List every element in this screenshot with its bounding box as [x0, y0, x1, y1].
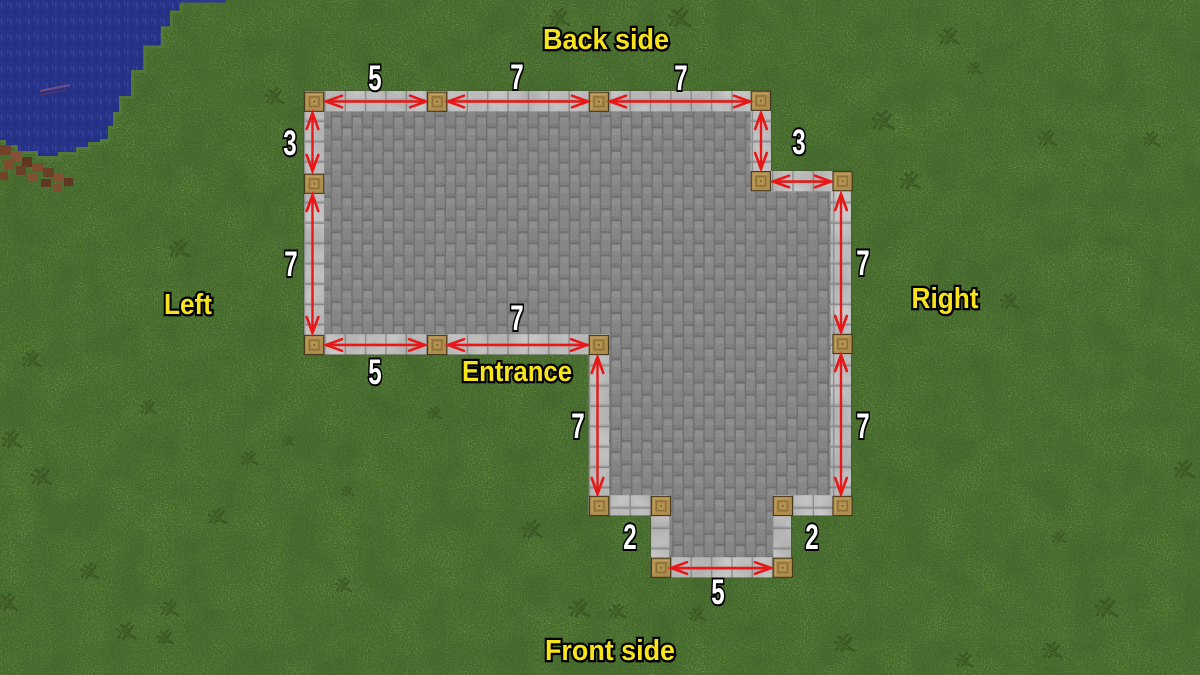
- svg-text:7: 7: [510, 58, 523, 97]
- svg-text:7: 7: [284, 245, 297, 284]
- svg-text:7: 7: [571, 407, 584, 446]
- svg-text:7: 7: [674, 59, 687, 98]
- svg-text:5: 5: [368, 59, 381, 98]
- svg-text:Right: Right: [912, 283, 979, 315]
- svg-text:2: 2: [623, 518, 636, 557]
- svg-text:Left: Left: [164, 289, 212, 321]
- svg-text:7: 7: [856, 244, 869, 283]
- svg-text:3: 3: [792, 123, 805, 162]
- svg-text:7: 7: [510, 299, 523, 338]
- svg-text:5: 5: [368, 353, 381, 392]
- svg-text:5: 5: [711, 573, 724, 612]
- svg-text:3: 3: [283, 124, 296, 163]
- svg-text:Front side: Front side: [545, 635, 675, 667]
- svg-text:Entrance: Entrance: [462, 356, 572, 388]
- svg-text:7: 7: [856, 407, 869, 446]
- svg-text:Back side: Back side: [543, 24, 669, 56]
- svg-text:2: 2: [805, 518, 818, 557]
